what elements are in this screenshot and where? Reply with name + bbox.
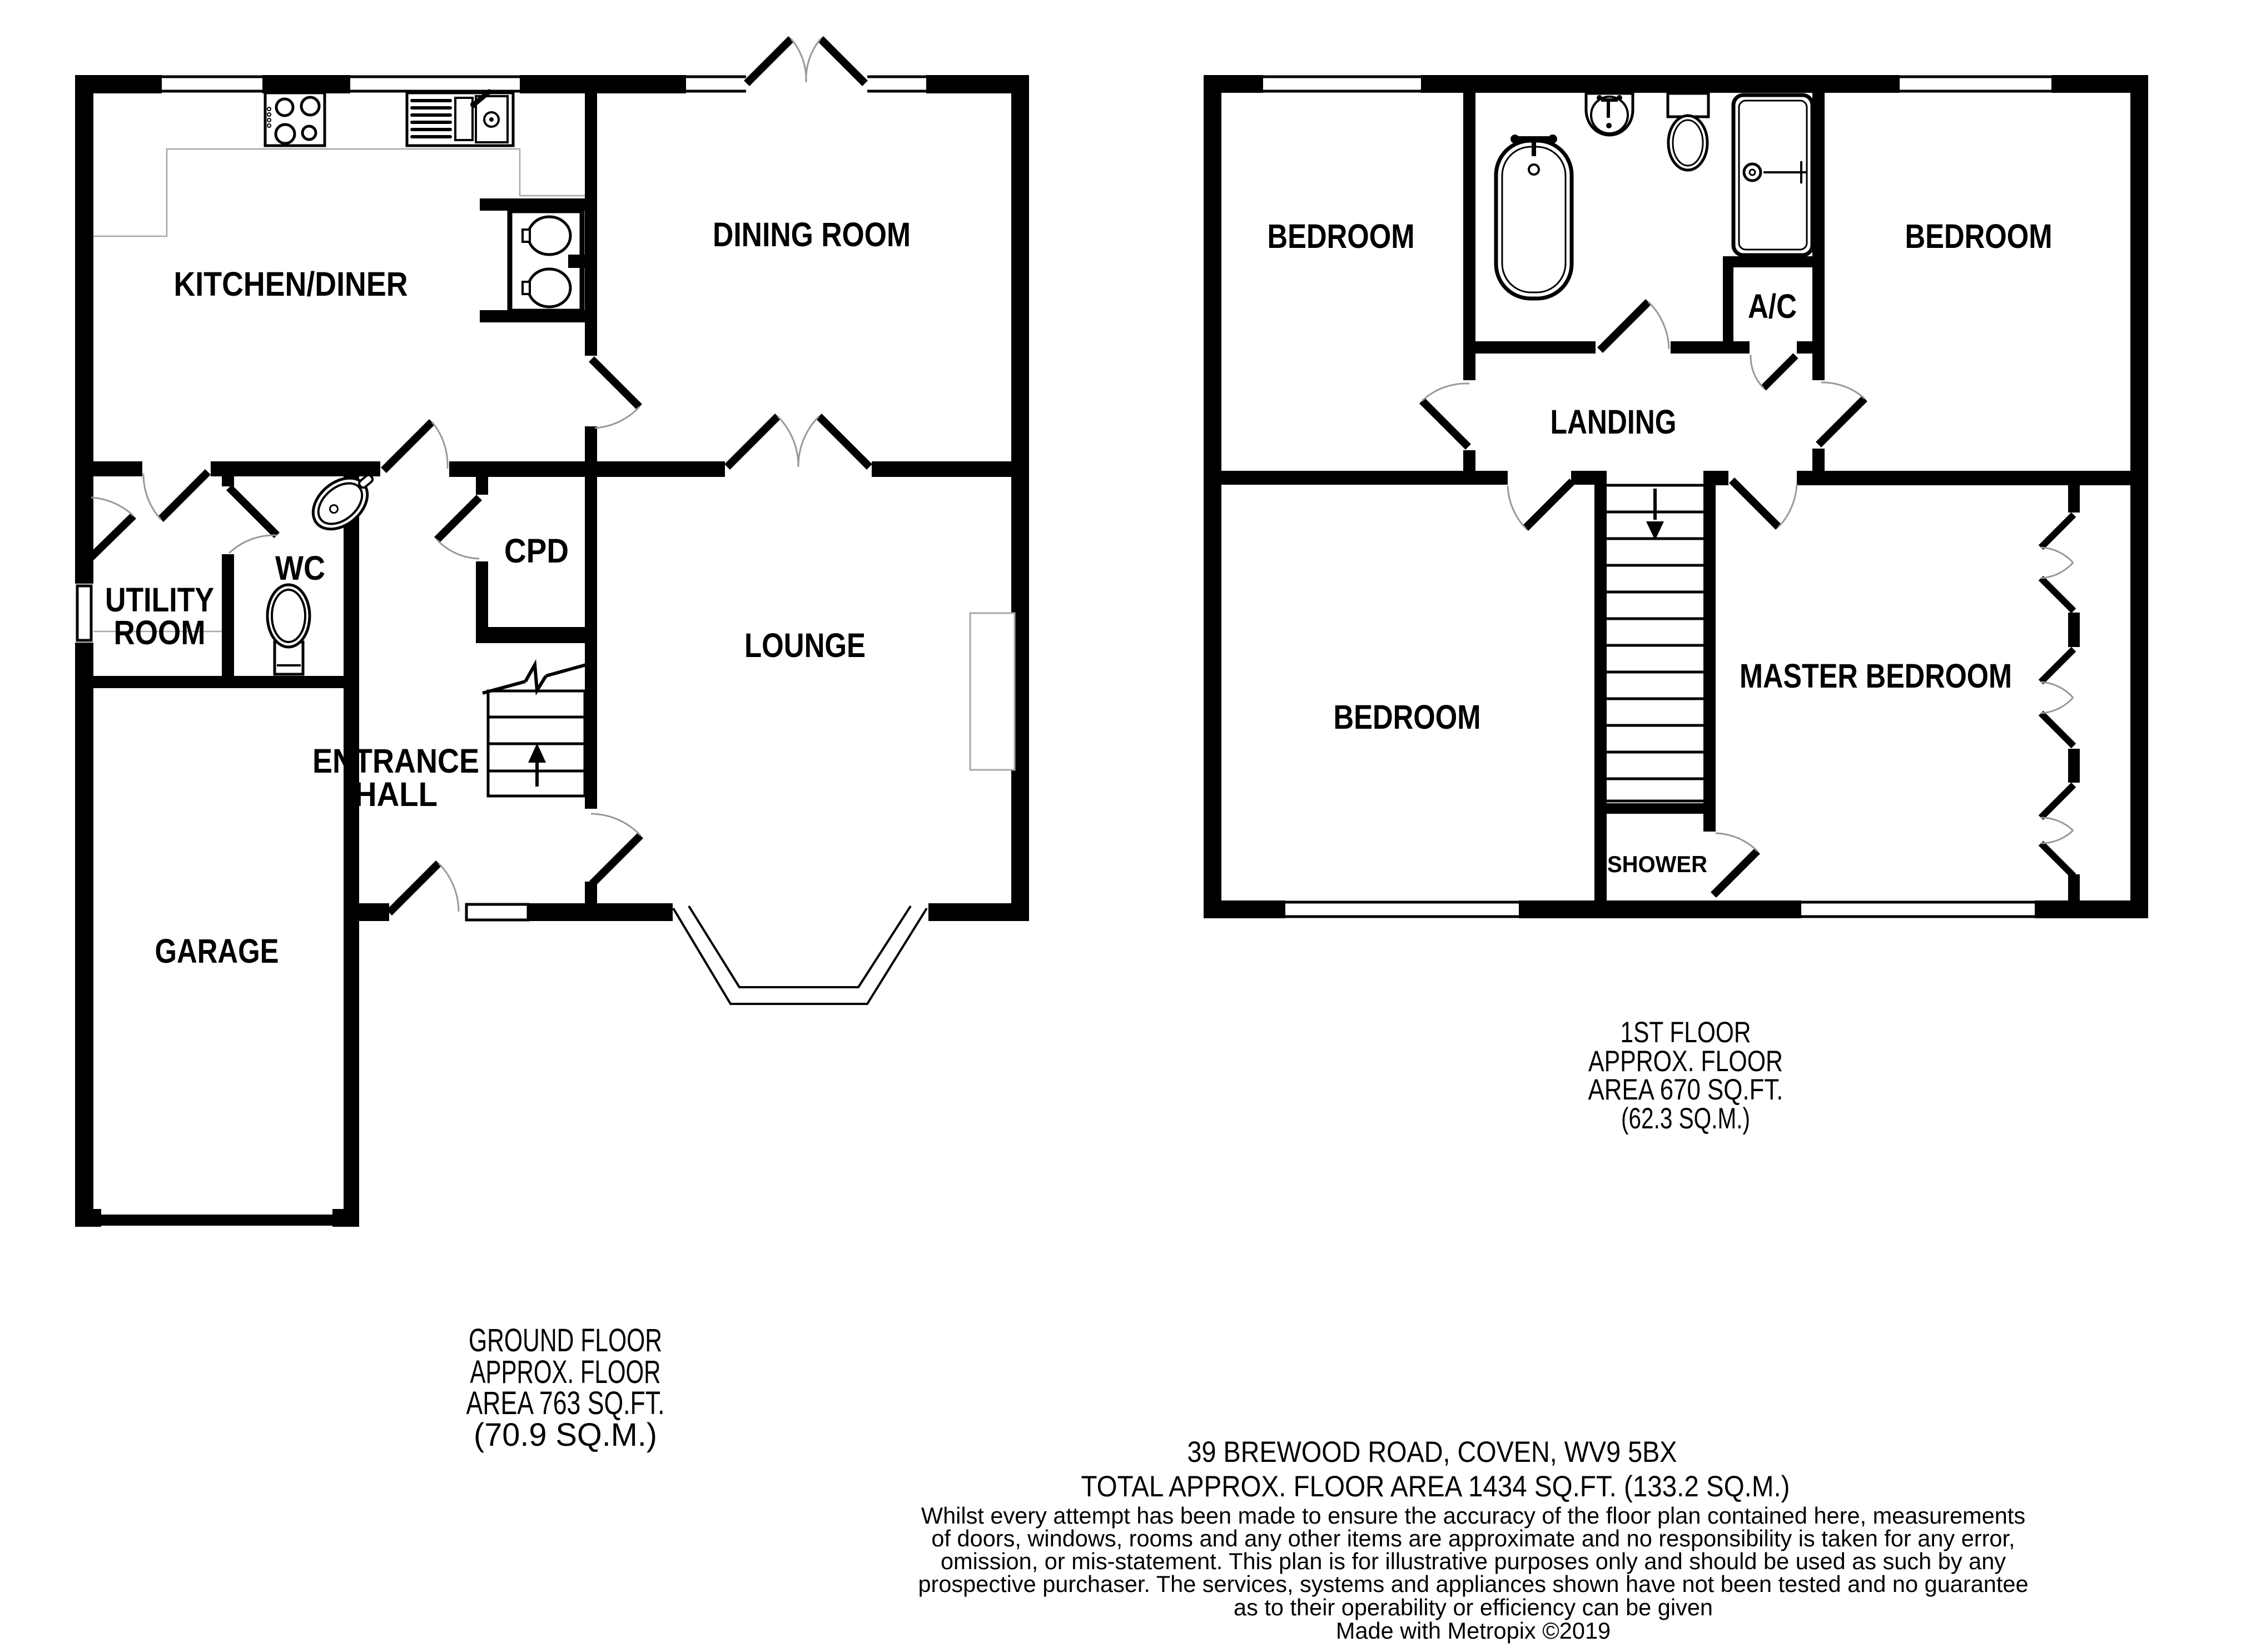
svg-text:UTILITY: UTILITY bbox=[105, 581, 214, 619]
svg-text:A/C: A/C bbox=[1748, 287, 1797, 325]
svg-text:Whilst every attempt has been: Whilst every attempt has been made to en… bbox=[921, 1502, 2025, 1529]
svg-text:as to their operability or eff: as to their operability or efficiency ca… bbox=[1234, 1594, 1713, 1620]
svg-text:AREA 763 SQ.FT.: AREA 763 SQ.FT. bbox=[466, 1385, 665, 1421]
svg-text:AREA 670 SQ.FT.: AREA 670 SQ.FT. bbox=[1588, 1073, 1783, 1106]
svg-text:ROOM: ROOM bbox=[114, 614, 206, 651]
svg-text:CPD: CPD bbox=[504, 532, 569, 570]
svg-text:ENTRANCE: ENTRANCE bbox=[312, 742, 479, 780]
svg-text:HALL: HALL bbox=[354, 775, 438, 813]
svg-text:LANDING: LANDING bbox=[1551, 403, 1677, 441]
svg-text:(70.9 SQ.M.): (70.9 SQ.M.) bbox=[474, 1417, 657, 1453]
svg-text:BEDROOM: BEDROOM bbox=[1334, 698, 1481, 736]
svg-text:GROUND FLOOR: GROUND FLOOR bbox=[469, 1322, 662, 1359]
svg-text:Made with Metropix ©2019: Made with Metropix ©2019 bbox=[1336, 1618, 1611, 1644]
svg-text:(62.3 SQ.M.): (62.3 SQ.M.) bbox=[1621, 1102, 1750, 1135]
svg-text:LOUNGE: LOUNGE bbox=[744, 626, 866, 664]
svg-text:prospective purchaser. The ser: prospective purchaser. The services, sys… bbox=[918, 1571, 2028, 1597]
svg-text:BEDROOM: BEDROOM bbox=[1905, 217, 2053, 255]
svg-text:TOTAL APPROX. FLOOR AREA 1434: TOTAL APPROX. FLOOR AREA 1434 SQ.FT. (13… bbox=[1081, 1470, 1790, 1503]
svg-text:SHOWER: SHOWER bbox=[1607, 851, 1707, 877]
svg-text:GARAGE: GARAGE bbox=[155, 932, 279, 970]
svg-text:WC: WC bbox=[275, 549, 325, 587]
svg-text:39 BREWOOD ROAD, COVEN, WV9 5B: 39 BREWOOD ROAD, COVEN, WV9 5BX bbox=[1187, 1436, 1677, 1469]
svg-text:omission, or mis-statement. Th: omission, or mis-statement. This plan is… bbox=[941, 1548, 2006, 1574]
svg-text:BEDROOM: BEDROOM bbox=[1268, 217, 1415, 255]
svg-text:of doors, windows, rooms and a: of doors, windows, rooms and any other i… bbox=[931, 1525, 2015, 1551]
svg-text:DINING ROOM: DINING ROOM bbox=[713, 216, 911, 253]
svg-text:KITCHEN/DINER: KITCHEN/DINER bbox=[174, 265, 408, 303]
svg-text:1ST FLOOR: 1ST FLOOR bbox=[1621, 1016, 1751, 1049]
svg-text:MASTER BEDROOM: MASTER BEDROOM bbox=[1740, 657, 2012, 695]
